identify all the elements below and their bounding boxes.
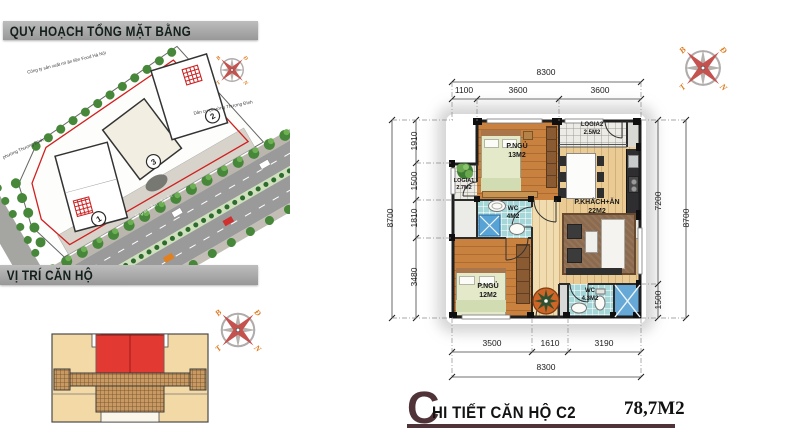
- room-name: P.NGỦ: [463, 283, 513, 292]
- coffee-table: [585, 231, 598, 253]
- location-title-bar: VỊ TRÍ CĂN HỘ: [0, 265, 258, 285]
- dim-top-total: 8300: [506, 67, 586, 77]
- room-area: 4M2: [495, 213, 531, 221]
- apartment-marker-1: [73, 197, 93, 217]
- room-label-logia2: LOGIA2 2.5M2: [567, 122, 617, 137]
- corridor-end-right: [190, 369, 206, 390]
- dim-right-total: 8700: [681, 198, 691, 238]
- compass-west-label: T: [216, 80, 223, 87]
- site-plan-title: QUY HOẠCH TỔNG MẶT BẰNG: [3, 23, 191, 39]
- dim-bottom-seg-3: 3190: [584, 338, 624, 348]
- dim-left-seg-1: 1910: [409, 121, 419, 161]
- compass-west-label: T: [213, 343, 224, 354]
- dining-chair: [559, 172, 566, 182]
- dining-chair: [559, 188, 566, 198]
- kitchen-cooktop: [628, 176, 639, 193]
- shaft-floor: [614, 284, 641, 318]
- dim-bottom-seg-2: 1610: [530, 338, 570, 348]
- compass-south-label: N: [241, 79, 249, 87]
- dining-chair: [597, 172, 604, 182]
- bench-1: [482, 191, 538, 198]
- compass-south-label: N: [717, 81, 730, 94]
- room-label-wc1: WC 4M2: [495, 205, 531, 221]
- dining-chair: [597, 188, 604, 198]
- corridor-end-left: [54, 369, 70, 390]
- compass-east-label: Đ: [241, 54, 249, 62]
- bed-2-headboard: [456, 268, 506, 273]
- dim-right-seg-2: 1500: [653, 280, 663, 320]
- room-area: 4.3M2: [570, 296, 610, 304]
- corridor-band: [60, 373, 200, 386]
- floor-plan-compass-rose: B Đ T N: [676, 41, 730, 95]
- dining-chair: [597, 156, 604, 166]
- closet-strip-floor: [559, 284, 568, 318]
- room-label-logia1: LOGIA1 2.7M2: [449, 178, 479, 192]
- room-label-bedroom2: P.NGỦ 12M2: [463, 283, 513, 301]
- compass-north-label: B: [213, 307, 224, 318]
- dim-bottom-seg-1: 3500: [472, 338, 512, 348]
- room-label-wc2: WC 4.3M2: [570, 288, 610, 303]
- room-area: 22M2: [567, 208, 627, 217]
- dim-left-seg-2: 1500: [409, 161, 419, 201]
- tv-console: [566, 268, 622, 275]
- wardrobe-1: [546, 126, 557, 188]
- compass-hub: [701, 66, 705, 70]
- key-plan-bottom-gap: [101, 412, 159, 422]
- armchair: [567, 224, 582, 239]
- room-name: P.NGỦ: [492, 143, 542, 152]
- logia2-corner-cell: [627, 121, 641, 147]
- room-name: LOGIA2: [567, 122, 617, 130]
- dim-top-seg-1: 1100: [444, 85, 484, 95]
- armchair: [567, 248, 582, 263]
- compass-east-label: Đ: [717, 43, 729, 55]
- site-plan-title-bar: QUY HOẠCH TỔNG MẶT BẰNG: [3, 21, 258, 40]
- room-name: LOGIA1: [449, 178, 479, 185]
- nightstand-1: [523, 131, 533, 140]
- title-underline: [407, 424, 675, 428]
- compass-hub: [231, 69, 233, 71]
- dim-left-seg-3: 1810: [409, 198, 419, 238]
- room-name: WC: [495, 205, 531, 213]
- corridor-core: [96, 386, 164, 412]
- compass-north-label: B: [215, 55, 223, 63]
- dim-top-seg-2: 3600: [498, 85, 538, 95]
- compass-south-label: N: [252, 343, 264, 355]
- compass-hub: [236, 328, 240, 332]
- room-area: 2.7M2: [449, 185, 479, 192]
- dim-top-seg-3: 3600: [580, 85, 620, 95]
- wardrobe-2: [516, 244, 530, 304]
- hall-floor: [532, 200, 559, 318]
- dim-right-seg-1: 7200: [653, 181, 663, 221]
- bed-2-blanket: [456, 300, 506, 312]
- room-name: P.KHÁCH+ĂN: [567, 199, 627, 208]
- bed-1-headboard: [481, 130, 521, 136]
- compass-north-label: B: [676, 44, 688, 56]
- room-area: 2.5M2: [567, 130, 617, 138]
- compass-east-label: Đ: [252, 307, 263, 318]
- key-plan: [40, 326, 220, 430]
- kitchen-sink: [628, 155, 639, 168]
- dim-left-total: 8700: [385, 198, 395, 238]
- dining-chair: [559, 156, 566, 166]
- compass-west-label: T: [677, 81, 688, 92]
- room-label-bedroom1: P.NGỦ 13M2: [492, 143, 542, 161]
- sofa: [601, 219, 625, 269]
- dining-table: [566, 153, 596, 199]
- site-compass-rose: B Đ T N: [214, 52, 250, 88]
- dim-left-seg-4: 3480: [409, 257, 419, 297]
- detail-title: HI TIẾT CĂN HỘ C2: [432, 403, 576, 423]
- room-name: WC: [570, 288, 610, 296]
- key-plan-compass-rose: B Đ T N: [212, 304, 264, 356]
- brochure-page: QUY HOẠCH TỔNG MẶT BẰNG: [0, 0, 800, 444]
- room-label-living: P.KHÁCH+ĂN 22M2: [567, 199, 627, 217]
- bed-1-blanket: [481, 178, 521, 192]
- room-area: 13M2: [492, 152, 542, 161]
- dim-bottom-total: 8300: [506, 362, 586, 372]
- location-title: VỊ TRÍ CĂN HỘ: [0, 267, 93, 283]
- room-area: 12M2: [463, 292, 513, 301]
- vestibule-floor: [453, 200, 477, 238]
- apartment-total-area: 78,7M2: [624, 398, 685, 420]
